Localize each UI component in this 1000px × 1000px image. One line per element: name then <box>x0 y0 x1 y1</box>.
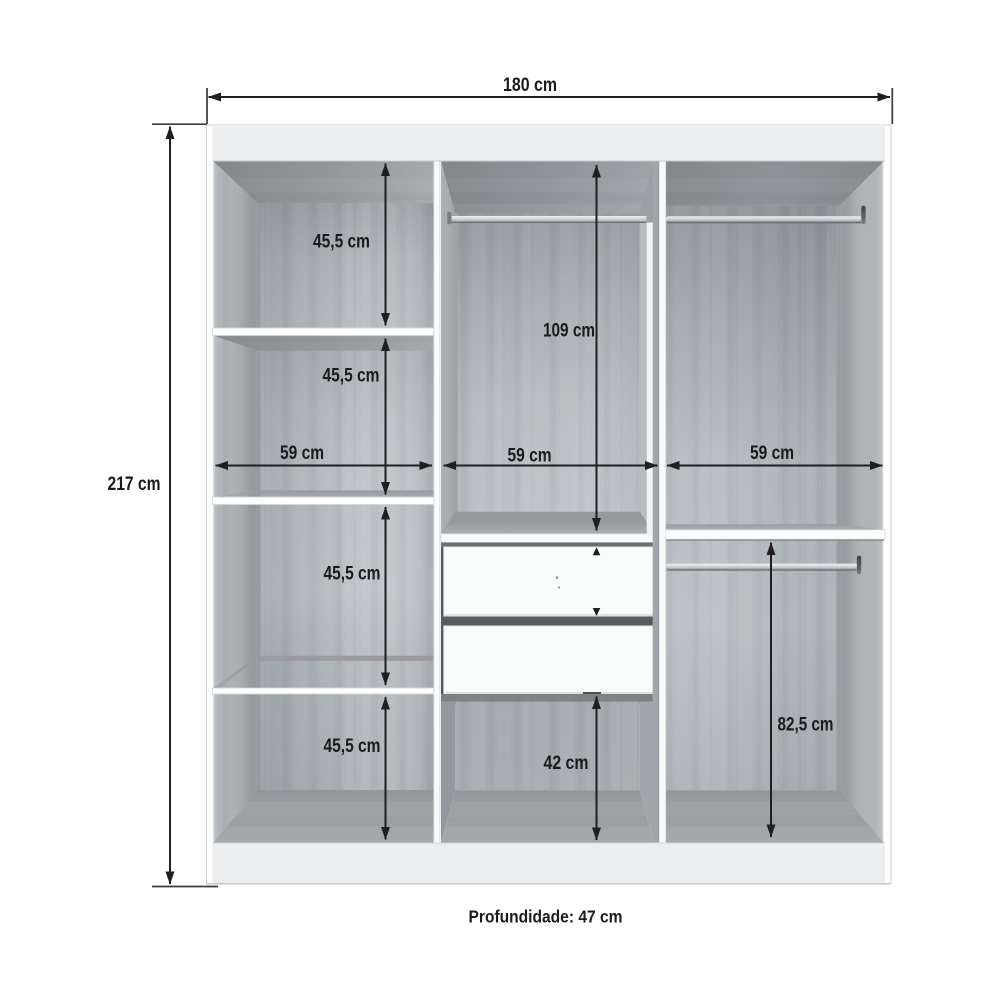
svg-text:82,5 cm: 82,5 cm <box>778 715 834 736</box>
svg-text:45,5 cm: 45,5 cm <box>323 366 380 387</box>
svg-text:45,5 cm: 45,5 cm <box>313 232 370 253</box>
svg-text:59 cm: 59 cm <box>280 443 324 464</box>
svg-text:59 cm: 59 cm <box>750 443 794 464</box>
svg-text:Profundidade: 47 cm: Profundidade: 47 cm <box>469 907 623 927</box>
svg-text:45,5 cm: 45,5 cm <box>324 736 381 757</box>
svg-text:217 cm: 217 cm <box>108 474 161 495</box>
svg-text:45,5 cm: 45,5 cm <box>324 564 381 585</box>
svg-text:59 cm: 59 cm <box>508 446 552 467</box>
svg-text:180 cm: 180 cm <box>503 75 557 96</box>
svg-text:109 cm: 109 cm <box>543 321 595 342</box>
svg-text:42 cm: 42 cm <box>544 753 589 774</box>
